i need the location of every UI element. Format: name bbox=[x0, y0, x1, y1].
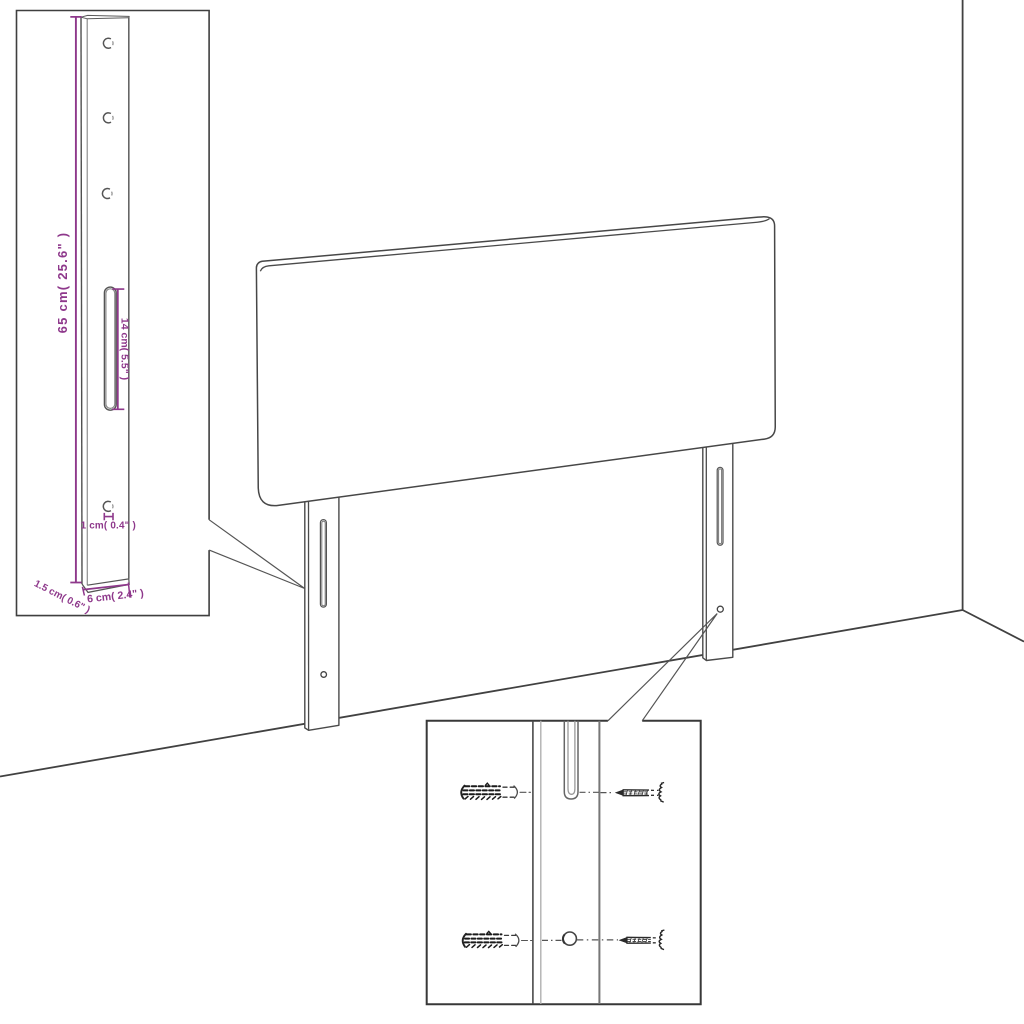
svg-text:1 cm( 0.4" ): 1 cm( 0.4" ) bbox=[81, 521, 136, 532]
svg-text:65 cm( 25.6" ): 65 cm( 25.6" ) bbox=[55, 232, 70, 334]
svg-text:14 cm( 5.5" ): 14 cm( 5.5" ) bbox=[118, 318, 130, 380]
